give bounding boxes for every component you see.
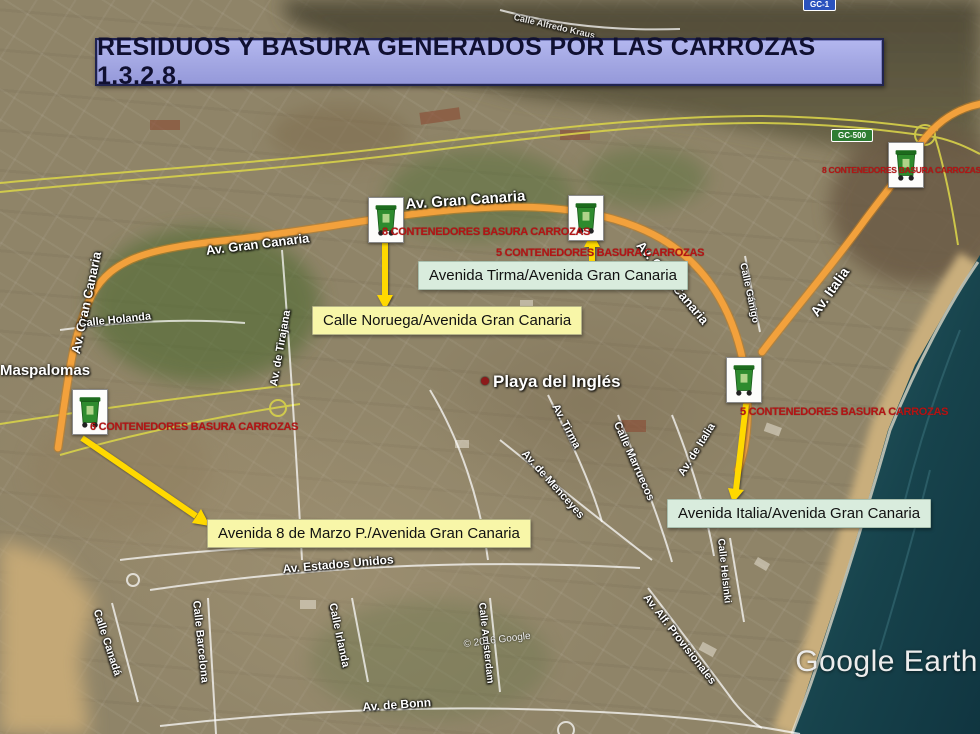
page-title: RESIDUOS Y BASURA GENERADOS POR LAS CARR… [97,33,882,91]
container-count-label: 5 CONTENEDORES BASURA CARROZAS [740,406,948,418]
callout-tirma: Avenida Tirma/Avenida Gran Canaria [418,261,688,290]
google-earth-map-slide: Calle Alfredo Kraus Av. Gran Canaria Av.… [0,0,980,734]
callout-italia: Avenida Italia/Avenida Gran Canaria [667,499,931,528]
callout-arrows-layer [0,0,980,734]
container-count-label: 8 CONTENEDORES BASURA CARROZAS [822,165,980,175]
container-count-label: 5 CONTENEDORES BASURA CARROZAS [496,247,704,259]
wheelie-bin-icon [731,362,757,398]
arrow-marzo [82,438,196,516]
title-banner: RESIDUOS Y BASURA GENERADOS POR LAS CARR… [95,38,884,86]
callout-marzo: Avenida 8 de Marzo P./Avenida Gran Canar… [207,519,531,548]
waste-container-icon-italia [726,357,762,403]
callout-noruega: Calle Noruega/Avenida Gran Canaria [312,306,582,335]
container-count-label: 6 CONTENEDORES BASURA CARROZAS [90,421,298,433]
container-count-label: 8 CONTENEDORES BASURA CARROZAS [382,226,590,238]
google-earth-logo: Google Earth [795,645,978,679]
